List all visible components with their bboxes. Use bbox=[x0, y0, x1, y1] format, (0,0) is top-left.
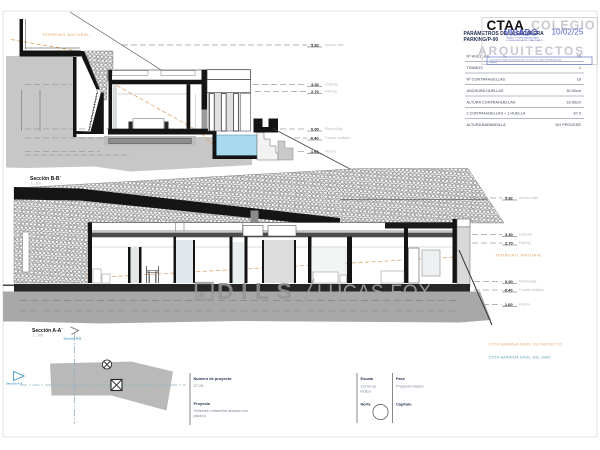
svg-text:Fase: Fase bbox=[396, 376, 406, 381]
svg-text:COTA NARANJA NIVEL DEL MAR: COTA NARANJA NIVEL DEL MAR bbox=[489, 356, 551, 360]
svg-text:Escala: Escala bbox=[361, 376, 374, 381]
svg-text:-0.40: -0.40 bbox=[504, 287, 514, 292]
svg-text:1: 1 bbox=[579, 66, 581, 70]
svg-text:Documento visado electrónicame: Documento visado electrónicamente con nú… bbox=[490, 58, 563, 61]
svg-text:Piscina: Piscina bbox=[325, 150, 336, 154]
svg-text:Número de proyecto: Número de proyecto bbox=[194, 376, 232, 381]
svg-text:número: número bbox=[490, 61, 498, 64]
svg-text:3.30: 3.30 bbox=[505, 232, 514, 237]
svg-text:Sección B-B: Sección B-B bbox=[64, 337, 83, 341]
svg-text:NO PROCEDE: NO PROCEDE bbox=[555, 123, 581, 127]
svg-text:Capítulo: Capítulo bbox=[396, 401, 412, 406]
svg-text:VISADO: VISADO bbox=[504, 28, 538, 38]
svg-text:27.26: 27.26 bbox=[194, 383, 204, 388]
svg-text:0.00: 0.00 bbox=[311, 126, 320, 131]
svg-text:Piscina: Piscina bbox=[519, 303, 530, 307]
svg-text:18.95cm: 18.95cm bbox=[566, 101, 581, 105]
svg-text:Planta Baja: Planta Baja bbox=[325, 127, 342, 131]
svg-text:Parking: Parking bbox=[325, 90, 337, 94]
svg-text:Planta Baja: Planta Baja bbox=[519, 280, 536, 284]
svg-text:ALTURA CONTRAHUELLAS: ALTURA CONTRAHUELLAS bbox=[467, 101, 516, 105]
svg-text:Parking: Parking bbox=[519, 241, 531, 245]
svg-text:TERRENO NATURAL: TERRENO NATURAL bbox=[495, 253, 543, 258]
svg-text:piscina: piscina bbox=[194, 413, 207, 418]
svg-text:5.82: 5.82 bbox=[311, 42, 320, 47]
svg-text:DILS: DILS bbox=[217, 278, 299, 304]
svg-text:COTA NARANJA NIVEL DE PROYECTO: COTA NARANJA NIVEL DE PROYECTO bbox=[489, 343, 562, 347]
svg-text:67.9: 67.9 bbox=[574, 112, 581, 116]
svg-text:2.70: 2.70 bbox=[311, 89, 320, 94]
svg-text:Proyecto básico: Proyecto básico bbox=[396, 384, 424, 389]
svg-text:Acceso calle: Acceso calle bbox=[325, 43, 344, 47]
svg-text:Sección A-A: Sección A-A bbox=[6, 382, 22, 386]
svg-text:2 CONTRAHUELLAS + 1 HUELLA: 2 CONTRAHUELLAS + 1 HUELLA bbox=[467, 112, 526, 116]
svg-text:ARQUITECTOS: ARQUITECTOS bbox=[478, 44, 585, 58]
svg-text:Fosado sanitario: Fosado sanitario bbox=[325, 136, 350, 140]
svg-text:Nº CONTRAHUELLAS: Nº CONTRAHUELLAS bbox=[467, 78, 506, 82]
svg-text:2.70: 2.70 bbox=[505, 240, 514, 245]
svg-text:Fosado sanitario: Fosado sanitario bbox=[519, 288, 544, 292]
svg-text:1 : 100: 1 : 100 bbox=[33, 334, 43, 338]
svg-text:3.30: 3.30 bbox=[311, 82, 320, 87]
svg-text:10/02/25: 10/02/25 bbox=[552, 28, 584, 37]
svg-text:-1.60: -1.60 bbox=[504, 302, 514, 307]
svg-text:ANCHURA HUELLAS: ANCHURA HUELLAS bbox=[467, 89, 504, 93]
svg-text:Acceso calle: Acceso calle bbox=[519, 196, 538, 200]
svg-text:ALTURA BARANDILLA: ALTURA BARANDILLA bbox=[467, 123, 507, 127]
svg-text:18: 18 bbox=[577, 78, 581, 82]
svg-text:LUCAS FOX: LUCAS FOX bbox=[317, 282, 432, 303]
svg-text:Proyecto: Proyecto bbox=[194, 401, 211, 406]
svg-text:0.00: 0.00 bbox=[505, 279, 514, 284]
svg-text:30.00cm: 30.00cm bbox=[566, 89, 581, 93]
svg-text:PARKING/P-00: PARKING/P-00 bbox=[464, 37, 499, 43]
svg-text:TRAMOS: TRAMOS bbox=[467, 66, 484, 70]
svg-text:Cubierta: Cubierta bbox=[519, 233, 532, 237]
svg-text:Norte: Norte bbox=[361, 402, 372, 407]
svg-text:-1.60: -1.60 bbox=[310, 149, 320, 154]
svg-text:COLEGIO ALICANTE CTAA-VISADO: COLEGIO ALICANTE CTAA-VISADO bbox=[506, 39, 543, 42]
svg-text:5.82: 5.82 bbox=[505, 195, 514, 200]
svg-text:TERRENO NATURAL: TERRENO NATURAL bbox=[42, 32, 90, 37]
svg-text:indica: indica bbox=[361, 389, 372, 394]
svg-text:1 : 100: 1 : 100 bbox=[31, 182, 41, 186]
svg-text:-0.40: -0.40 bbox=[310, 135, 320, 140]
svg-text:Cubierta: Cubierta bbox=[325, 83, 338, 87]
